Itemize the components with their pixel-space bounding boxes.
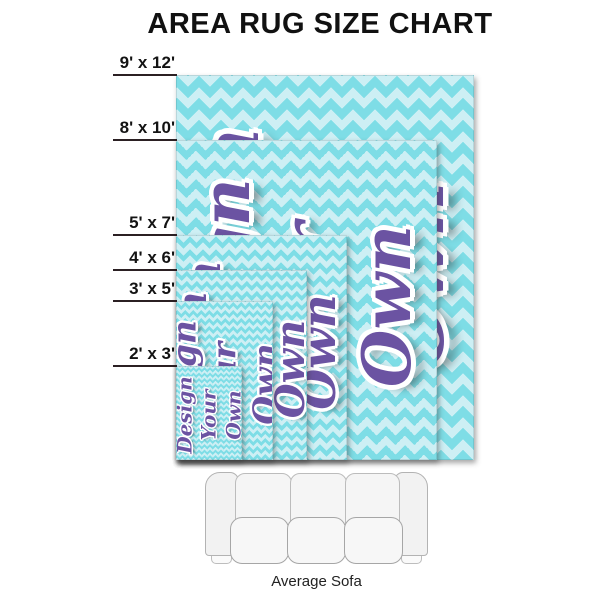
rug-design-text-line: Your: [197, 376, 221, 453]
size-line-4x6: [113, 269, 177, 271]
size-line-3x5: [113, 300, 177, 302]
sofa-illustration: [205, 472, 428, 565]
sofa-seat-cushion-1: [230, 517, 289, 564]
rug-design-text-line: Own: [245, 320, 273, 448]
size-line-5x7: [113, 234, 177, 236]
size-label-4x6: 4' x 6': [96, 248, 175, 268]
rug-2x3: DesignYourOwn: [176, 366, 242, 460]
size-line-8x10: [113, 139, 177, 141]
size-line-2x3: [113, 365, 177, 367]
size-line-9x12: [113, 74, 177, 76]
rug-design-text: DesignYourOwn: [176, 376, 242, 453]
size-label-5x7: 5' x 7': [96, 213, 175, 233]
rug-size-chart: AREA RUG SIZE CHART DesignYourOwn9' x 12…: [0, 0, 600, 600]
rug-design-text-line: Design: [176, 376, 197, 453]
rug-design-text-line: Own: [347, 179, 428, 435]
rug-design-text-line: Own: [221, 376, 242, 453]
sofa-seat-cushion-2: [287, 517, 346, 564]
size-label-2x3: 2' x 3': [96, 344, 175, 364]
size-label-8x10: 8' x 10': [96, 118, 175, 138]
size-label-9x12: 9' x 12': [96, 53, 175, 73]
sofa-label: Average Sofa: [205, 573, 428, 590]
sofa-seat-cushion-3: [344, 517, 403, 564]
size-label-3x5: 3' x 5': [96, 279, 175, 299]
